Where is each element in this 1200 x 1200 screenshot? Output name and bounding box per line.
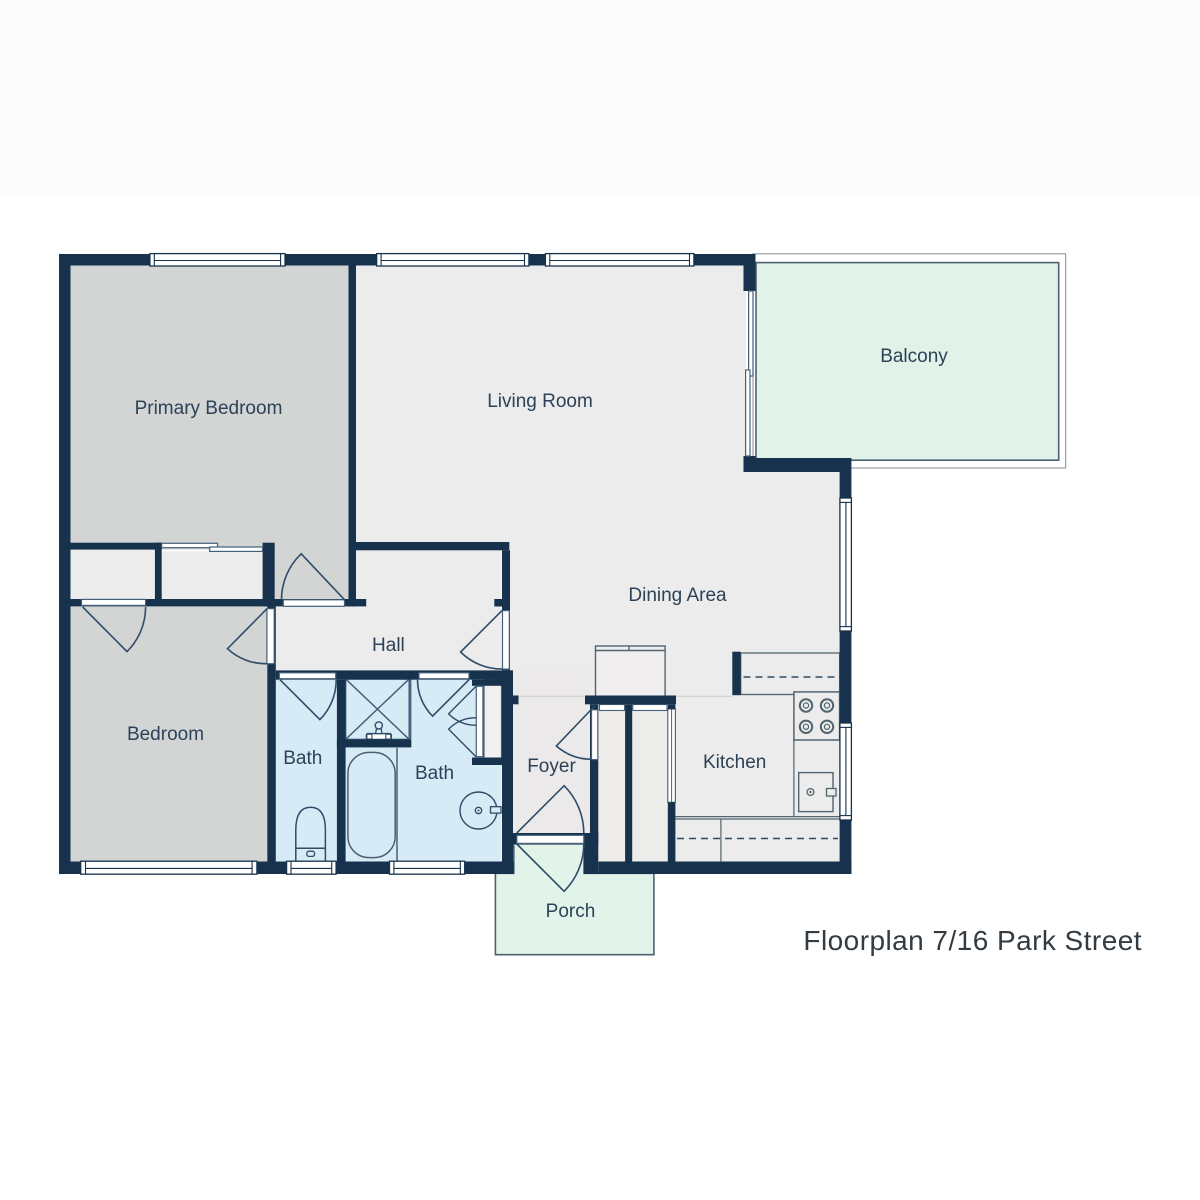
svg-text:Hall: Hall xyxy=(372,635,405,656)
svg-text:Kitchen: Kitchen xyxy=(703,752,766,773)
svg-text:Balcony: Balcony xyxy=(880,346,948,367)
svg-text:Dining Area: Dining Area xyxy=(628,585,727,606)
svg-text:Primary Bedroom: Primary Bedroom xyxy=(135,398,283,419)
svg-text:Bedroom: Bedroom xyxy=(127,724,204,745)
svg-text:Bath: Bath xyxy=(283,748,322,769)
svg-text:Foyer: Foyer xyxy=(527,756,576,777)
svg-text:Bath: Bath xyxy=(415,763,454,784)
svg-text:Living Room: Living Room xyxy=(487,391,593,412)
svg-text:Floorplan 7/16 Park Street: Floorplan 7/16 Park Street xyxy=(803,925,1142,956)
svg-text:Porch: Porch xyxy=(546,901,596,922)
